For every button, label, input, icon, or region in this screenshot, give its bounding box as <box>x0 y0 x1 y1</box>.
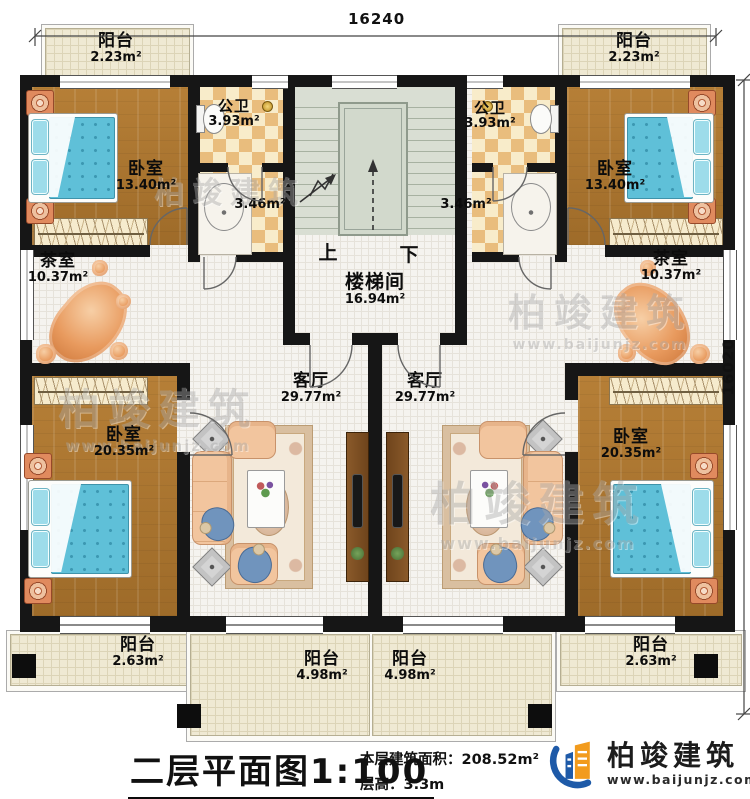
armchair <box>479 421 527 459</box>
room-label-wash-right: 3.46m² <box>440 198 491 213</box>
room-label-balcony-bottom-right: 阳台2.63m² <box>625 636 676 670</box>
room-label-bedroom-bottom-right: 卧室20.35m² <box>601 428 661 462</box>
pillow <box>693 489 710 525</box>
floor-area-row: 本层建筑面积：208.52m² <box>360 748 539 773</box>
balcony-door <box>60 616 150 634</box>
bedroom-furniture <box>20 450 132 608</box>
balcony-door <box>226 616 323 634</box>
closet-rod <box>38 391 144 393</box>
window <box>332 75 397 89</box>
bed <box>28 480 132 578</box>
pillow <box>32 120 48 154</box>
tv-cabinet <box>386 432 409 582</box>
floor-plan: 柏竣建筑 柏竣建筑 www.baijunjz.com 柏竣建筑 www.baij… <box>0 0 750 799</box>
pillow <box>693 531 710 567</box>
dimension-height: 16020 <box>720 338 738 395</box>
room-label-bath-right: 公卫3.93m² <box>464 100 515 131</box>
balcony-floor <box>10 634 192 686</box>
column <box>177 704 201 728</box>
room-label-balcony-center-left: 阳台4.98m² <box>296 650 347 684</box>
floor-height-value: 3.3m <box>404 777 445 793</box>
pillow <box>32 160 48 194</box>
company-logo: 柏竣建筑 www.baijunjz.com <box>545 735 750 793</box>
column <box>694 654 718 678</box>
plant-icon <box>391 547 404 560</box>
living-room-furniture <box>190 415 376 587</box>
stair-up-label: 上 <box>318 238 337 265</box>
room-label-balcony-top-right: 阳台2.23m² <box>608 32 659 66</box>
pillow <box>32 531 49 567</box>
drawing-stats: 本层建筑面积：208.52m² 层高：3.3m <box>360 748 539 797</box>
closet-rod <box>613 233 719 235</box>
interior-wall <box>565 452 578 616</box>
room-label-bath-left: 公卫3.93m² <box>208 98 259 129</box>
pillow <box>694 160 710 194</box>
washbasin-icon <box>511 183 551 231</box>
coffee-table <box>247 470 285 528</box>
tv-icon <box>393 475 402 527</box>
room-label-bedroom-top-left: 卧室13.40m² <box>116 160 176 194</box>
brand-logo-icon <box>545 735 601 793</box>
room-label-living-left: 客厅29.77m² <box>281 372 341 406</box>
room-label-bedroom-top-right: 卧室13.40m² <box>585 160 645 194</box>
interior-wall <box>177 452 190 616</box>
interior-wall <box>177 376 190 400</box>
column <box>12 654 36 678</box>
pillow <box>694 120 710 154</box>
stair-landing <box>338 102 408 236</box>
interior-wall <box>440 333 467 345</box>
tv-cabinet <box>346 432 369 582</box>
pillow <box>32 489 49 525</box>
column <box>528 704 552 728</box>
nightstand <box>24 453 52 479</box>
brand-name: 柏竣建筑 <box>607 741 750 772</box>
closet-rod <box>38 233 144 235</box>
window <box>723 425 737 530</box>
interior-wall <box>565 376 578 400</box>
flower-decoration <box>479 479 501 499</box>
living-room-furniture <box>379 415 565 587</box>
stair-landing-inner <box>344 108 402 230</box>
brand-website: www.baijunjz.com <box>607 772 750 787</box>
room-label-living-right: 客厅29.77m² <box>395 372 455 406</box>
armchair <box>228 421 276 459</box>
closet-rod <box>613 391 719 393</box>
coffee-table <box>470 470 508 528</box>
room-label-balcony-bottom-left: 阳台2.63m² <box>112 636 163 670</box>
toilet-icon <box>530 104 552 134</box>
stair-down-label: 下 <box>399 240 418 267</box>
tv-icon <box>353 475 362 527</box>
floor-height-label: 层高： <box>360 777 404 793</box>
room-label-wash-left: 3.46m² <box>234 198 285 213</box>
room-label-bedroom-bottom-left: 卧室20.35m² <box>94 426 154 460</box>
interior-wall <box>565 363 723 376</box>
interior-wall <box>32 363 190 376</box>
bed <box>28 113 118 203</box>
floor-area-label: 本层建筑面积： <box>360 752 462 768</box>
closet <box>609 377 723 405</box>
balcony-door <box>585 616 675 634</box>
nightstand <box>690 453 718 479</box>
drawing-title-text: 二层平面图 <box>130 752 310 792</box>
nightstand <box>24 578 52 604</box>
room-label-tea-right: 茶室10.37m² <box>641 250 701 284</box>
interior-wall <box>352 333 398 345</box>
interior-wall <box>283 333 310 345</box>
room-label-balcony-center-right: 阳台4.98m² <box>384 650 435 684</box>
bedroom-furniture <box>550 85 722 227</box>
brand-text: 柏竣建筑 www.baijunjz.com <box>607 741 750 787</box>
room-label-tea-left: 茶室10.37m² <box>28 252 88 286</box>
light-fixture-icon <box>262 101 273 112</box>
floor-area-value: 208.52m² <box>462 752 539 768</box>
plant-icon <box>351 547 364 560</box>
dimension-width: 16240 <box>348 10 405 28</box>
bedroom-furniture <box>610 450 722 608</box>
nightstand <box>690 578 718 604</box>
bed <box>610 480 714 578</box>
bedroom-furniture <box>20 85 192 227</box>
floor-height-row: 层高：3.3m <box>360 773 539 798</box>
room-label-balcony-top-left: 阳台2.23m² <box>90 32 141 66</box>
closet <box>34 377 148 405</box>
room-label-stairwell: 楼梯间16.94m² <box>345 272 405 308</box>
balcony-door <box>403 616 503 634</box>
window <box>723 250 737 340</box>
flower-decoration <box>254 479 276 499</box>
